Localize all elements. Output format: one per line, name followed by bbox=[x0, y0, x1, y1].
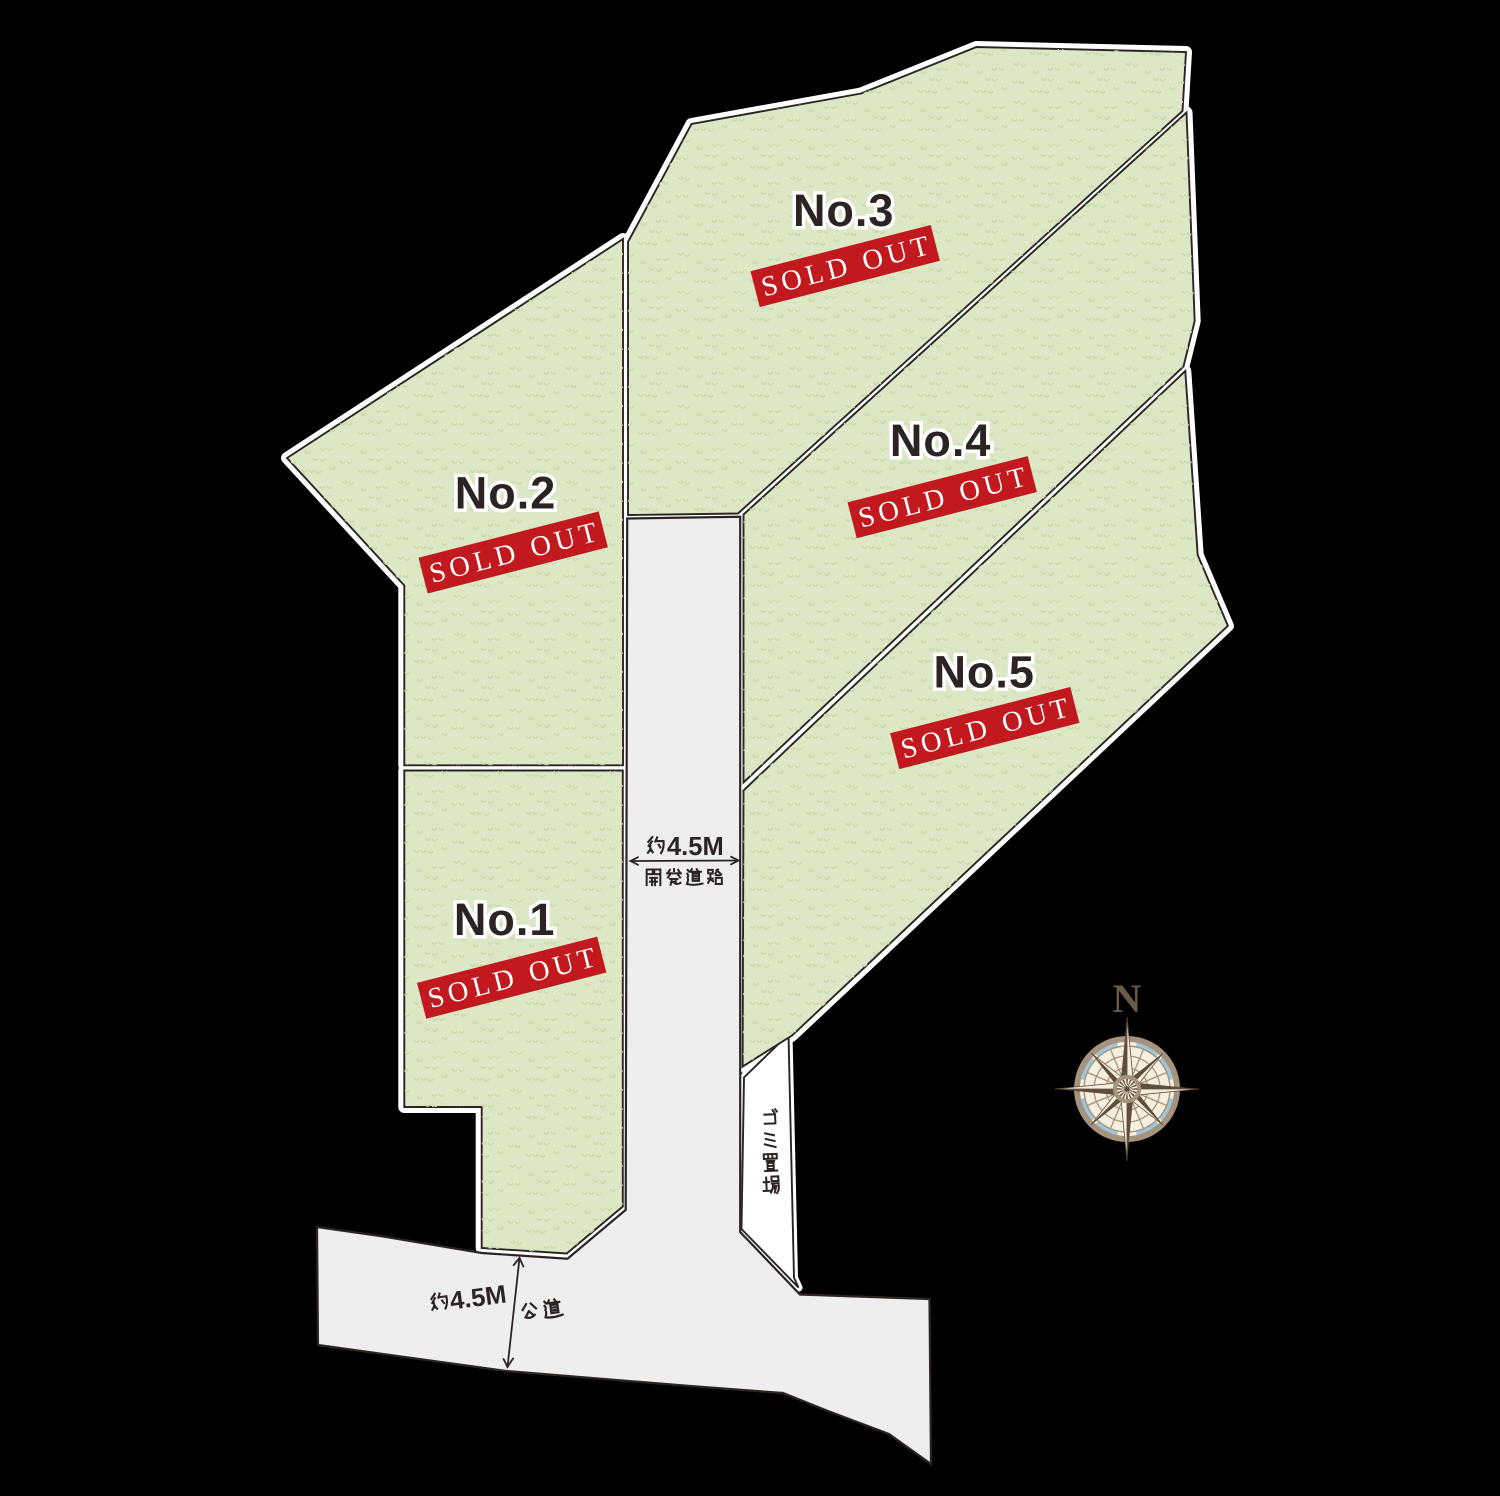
svg-text:No.1: No.1 bbox=[454, 894, 556, 945]
svg-text:No.3: No.3 bbox=[793, 185, 895, 236]
svg-text:4.5M: 4.5M bbox=[667, 833, 724, 861]
svg-text:N: N bbox=[1113, 976, 1142, 1021]
svg-text:No.2: No.2 bbox=[455, 468, 557, 519]
svg-text:No.5: No.5 bbox=[933, 646, 1035, 697]
svg-text:No.4: No.4 bbox=[890, 415, 992, 466]
